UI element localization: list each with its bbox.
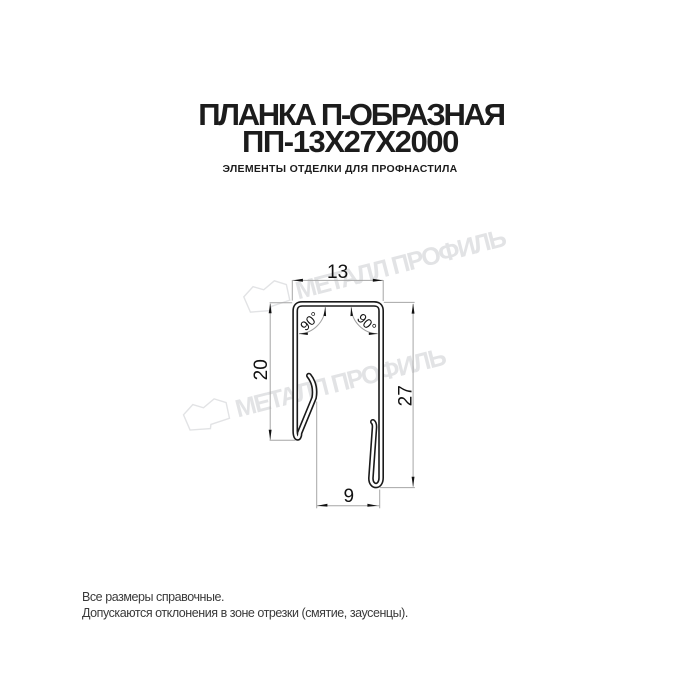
svg-text:27: 27 [396,385,417,406]
svg-text:20: 20 [251,359,272,380]
svg-text:9: 9 [344,486,355,507]
svg-text:МЕТАЛЛ ПРОФИЛЬ: МЕТАЛЛ ПРОФИЛЬ [232,343,449,424]
svg-text:13: 13 [327,262,348,283]
svg-text:90°: 90° [297,309,322,334]
svg-text:МЕТАЛЛ ПРОФИЛЬ: МЕТАЛЛ ПРОФИЛЬ [293,224,510,305]
svg-text:90°: 90° [354,311,379,336]
